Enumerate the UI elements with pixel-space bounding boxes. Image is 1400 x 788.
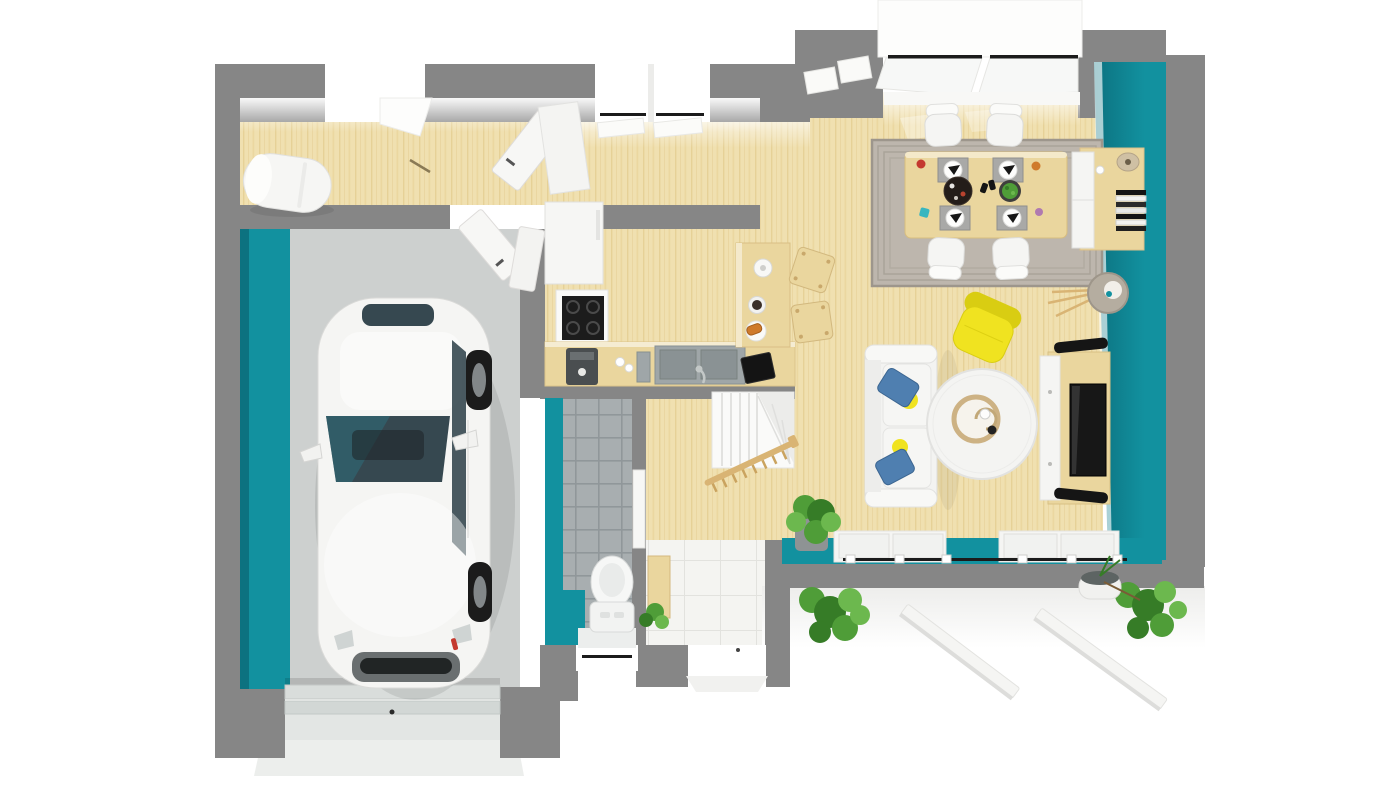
wall-living-bottom xyxy=(782,562,1204,588)
bar-stool xyxy=(791,301,834,344)
car-interior xyxy=(352,430,424,460)
sliding-door-track xyxy=(843,558,1127,561)
cooktop xyxy=(556,290,608,344)
driveway xyxy=(254,712,524,776)
wc-window xyxy=(576,645,638,671)
bottle xyxy=(625,364,633,372)
wall-right xyxy=(1162,55,1205,567)
wall-garage-bottom-left xyxy=(215,687,285,758)
sideboard xyxy=(1072,148,1146,250)
coffee-machine xyxy=(566,348,598,385)
car-rear-window xyxy=(362,304,434,326)
laptop xyxy=(741,352,776,384)
coffee-table xyxy=(927,369,1037,479)
garage xyxy=(300,298,515,700)
sliding-door xyxy=(999,531,1119,562)
bottle xyxy=(616,358,625,367)
teal-wall-wc xyxy=(545,398,563,598)
floor-plan-render xyxy=(0,0,1400,788)
wall-bottom-entry-b xyxy=(766,645,790,687)
dining-chair xyxy=(924,103,962,147)
dining-chair xyxy=(927,237,965,280)
flower xyxy=(1035,208,1043,216)
wall-bottom-entry-a xyxy=(636,645,688,687)
wall-left xyxy=(215,64,240,758)
cup xyxy=(917,160,926,169)
fridge xyxy=(545,202,603,284)
tv xyxy=(1070,384,1106,476)
car-grille xyxy=(360,658,452,674)
books xyxy=(1116,190,1146,231)
dining-table xyxy=(905,152,1067,238)
coffee-cup xyxy=(752,300,762,310)
serving-tray xyxy=(944,177,972,205)
dining-bay-window xyxy=(876,0,1082,105)
front-door xyxy=(686,645,768,692)
kitchen-sink xyxy=(655,346,745,384)
dining-chair xyxy=(992,237,1030,280)
wall-garage-bottom-right xyxy=(500,687,560,758)
white-car xyxy=(300,298,492,688)
canister xyxy=(637,352,650,382)
floor-plan-canvas xyxy=(0,0,1400,788)
wc-door xyxy=(633,470,645,548)
breakfast-bar xyxy=(736,243,790,347)
toilet xyxy=(590,556,634,632)
dining-chair xyxy=(986,103,1024,147)
cup xyxy=(1032,162,1041,171)
